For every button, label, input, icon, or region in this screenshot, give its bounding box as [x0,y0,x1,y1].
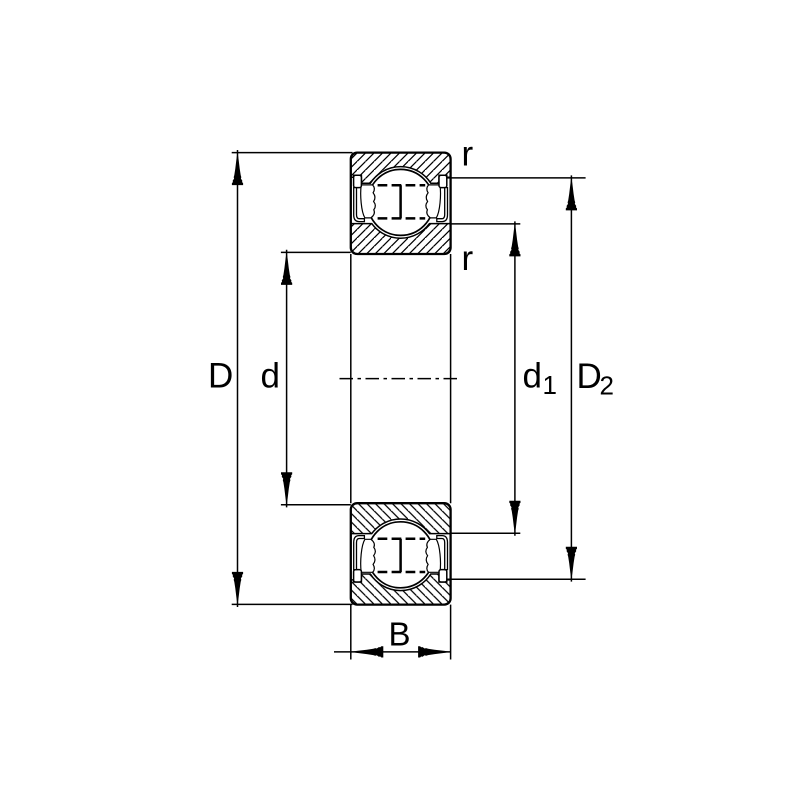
svg-text:d: d [261,357,280,396]
svg-text:1: 1 [543,370,557,400]
svg-text:d: d [523,357,542,396]
svg-text:r: r [462,135,474,174]
svg-text:2: 2 [600,371,614,401]
svg-text:D: D [208,357,233,396]
svg-text:r: r [462,239,474,278]
svg-text:B: B [389,616,411,653]
svg-text:D: D [577,357,602,396]
